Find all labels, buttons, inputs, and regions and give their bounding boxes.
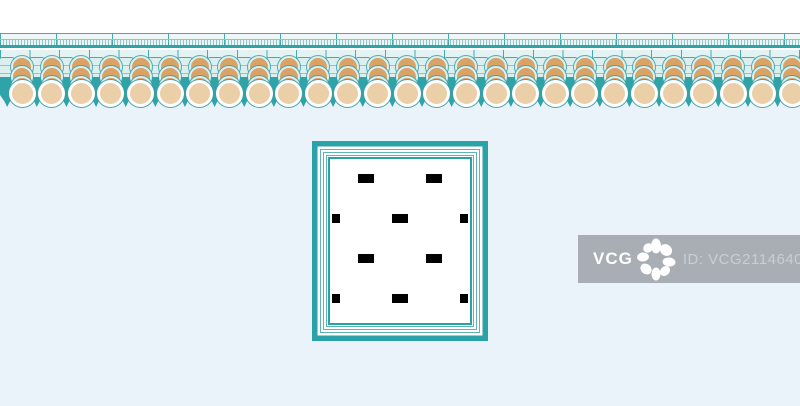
- eave-end-cap: [690, 80, 717, 107]
- eave-tile-stack: [482, 55, 510, 111]
- eave-end-cap: [216, 80, 243, 107]
- eave-tile-stack: [127, 55, 155, 111]
- eave-end-cap: [246, 80, 273, 107]
- eave-end-cap: [749, 80, 776, 107]
- eave-end-cap: [512, 80, 539, 107]
- eave-end-cap: [660, 80, 687, 107]
- eave-tile-stack: [8, 55, 36, 111]
- watermark-id-text: ID: VCG211464026927: [683, 251, 800, 268]
- eave-end-cap: [9, 80, 36, 107]
- vcg-watermark: VCG ID: VCG211464026927: [578, 235, 800, 283]
- eave-tile-stack: [452, 55, 480, 111]
- eave-end-cap: [334, 80, 361, 107]
- eave-end-cap: [631, 80, 658, 107]
- eave-tile-stack: [304, 55, 332, 111]
- ridge-tile-band: [0, 33, 800, 40]
- eave-tile-stack: [186, 55, 214, 111]
- eave-tile-stack: [393, 55, 421, 111]
- eave-tile-stack: [275, 55, 303, 111]
- eave-end-cap: [394, 80, 421, 107]
- eave-tile-stack: [156, 55, 184, 111]
- eave-tile-stack: [38, 55, 66, 111]
- eave-end-cap: [779, 80, 800, 107]
- eave-tile-stack: [512, 55, 540, 111]
- eave-tile-stack: [245, 55, 273, 111]
- eave-end-cap: [68, 80, 95, 107]
- eave-tile-stack: [601, 55, 629, 111]
- eave-end-cap: [127, 80, 154, 107]
- eave-tile-stack: [334, 55, 362, 111]
- eave-end-cap: [364, 80, 391, 107]
- lattice-window-icon: [312, 141, 488, 341]
- eave-end-cap: [483, 80, 510, 107]
- eave-tile-stack: [97, 55, 125, 111]
- chinese-wall-illustration: VCG ID: VCG211464026927: [0, 0, 800, 406]
- eave-tile-stack: [571, 55, 599, 111]
- eave-end-cap: [601, 80, 628, 107]
- eave-end-cap: [720, 80, 747, 107]
- eave-end-cap: [305, 80, 332, 107]
- eave-end-cap: [571, 80, 598, 107]
- eave-end-cap: [423, 80, 450, 107]
- eave-end-cap: [157, 80, 184, 107]
- eave-end-cap: [97, 80, 124, 107]
- eave-tile-stack: [719, 55, 747, 111]
- eave-end-cap: [38, 80, 65, 107]
- vcg-pinwheel-icon: [635, 237, 677, 281]
- eave-end-cap: [453, 80, 480, 107]
- eave-end-cap: [542, 80, 569, 107]
- ridge-solid-bar: [0, 45, 800, 49]
- eave-tile-stack: [630, 55, 658, 111]
- eave-tile-stack: [749, 55, 777, 111]
- eave-tile-stack: [689, 55, 717, 111]
- eave-tile-stack: [778, 55, 800, 111]
- lattice-pattern: [312, 161, 488, 321]
- vcg-logo-text: VCG: [593, 249, 633, 269]
- eave-tile-stack: [364, 55, 392, 111]
- eave-end-cap: [275, 80, 302, 107]
- eave-tiles-row: [0, 55, 800, 111]
- eave-tile-stack: [67, 55, 95, 111]
- eave-end-cap: [186, 80, 213, 107]
- eave-tile-stack: [423, 55, 451, 111]
- eave-tile-stack: [215, 55, 243, 111]
- eave-tile-stack: [541, 55, 569, 111]
- eave-tile-stack: [660, 55, 688, 111]
